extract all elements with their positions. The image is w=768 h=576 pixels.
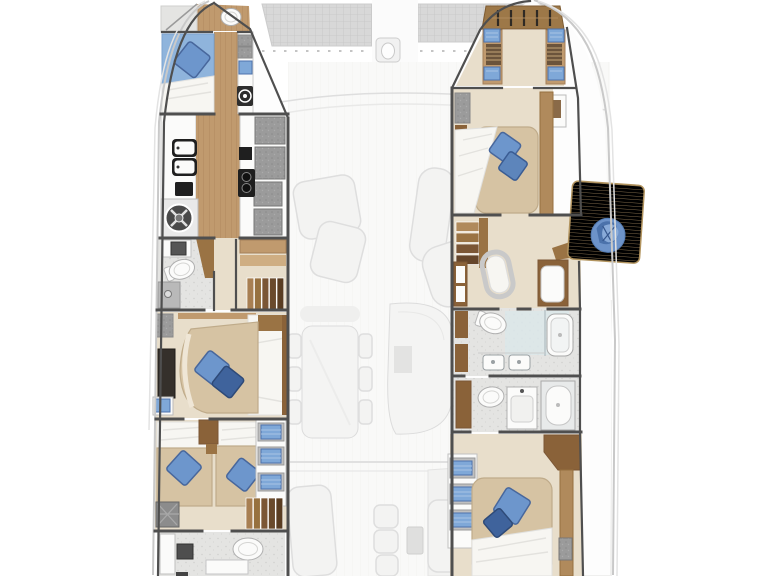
floorplan-page: catamaran-lower-deck-floor-plan [0,0,768,576]
sink-counter [507,387,537,429]
fold-out-balcony [567,181,644,264]
port-aft-head [157,532,285,576]
stbd-aft-cabin [448,434,582,576]
double-berth [455,127,538,213]
wood-trim [178,313,256,319]
fixture [176,572,188,576]
blue-cushion [239,61,252,74]
staircase [246,498,283,529]
table-shadow [300,306,360,322]
floorplan-canvas: catamaran-lower-deck-floor-plan [0,0,768,576]
cockpit-seat [374,505,398,528]
headboard [258,315,282,331]
locker [240,255,286,266]
helm-lounge [388,303,452,434]
double-berth [180,315,288,415]
sink [177,544,193,559]
single-berth [162,34,214,112]
berth-divider-step [206,444,217,454]
anchor-fitting [376,38,400,62]
stbd-forward-cabin [453,88,566,215]
stbd-forward-bathroom [452,308,580,376]
storage-cabinet [455,93,470,123]
berth-divider [199,420,218,444]
hatch [559,538,572,560]
stbd-aft-bathroom [452,378,580,432]
toilet [233,538,263,560]
small-appliance [175,182,193,196]
sink [171,242,186,255]
shower-tray [541,381,575,430]
storage-cabinet [238,47,252,58]
counter [206,560,248,574]
cockpit-bench-left [286,484,338,576]
washer-hatch [237,86,253,106]
cooktop [238,169,255,197]
storage-cabinet [156,314,173,337]
wood-wall [540,92,553,215]
trampoline-left [262,4,372,46]
port-mid-cabin [153,312,288,418]
fridge-cabinet [255,117,285,144]
locker [240,240,286,253]
towel-shelves [256,420,286,506]
cabinet [254,209,282,235]
small-appliance [239,147,252,160]
cockpit-table [407,527,423,554]
wood-trim [456,381,471,428]
cabinet [254,182,282,206]
cockpit-seat [376,555,398,576]
stbd-landing [452,215,581,308]
washing-machine [161,199,198,238]
port-hull [153,1,288,576]
port-aft-cabin [155,420,288,530]
starboard-hull [448,0,645,576]
desk-lockers [454,262,467,306]
fridge-cabinet [255,147,285,179]
wood-trim [455,311,468,338]
wood-trim [455,344,468,372]
cockpit-seat [374,530,398,553]
staircase [247,278,284,309]
cabinet [160,534,175,574]
shower-unit [547,314,573,356]
wood-corridor [214,32,238,114]
port-mid-head [158,238,288,310]
double-berth [472,478,552,576]
storage-cabinet [238,35,252,46]
